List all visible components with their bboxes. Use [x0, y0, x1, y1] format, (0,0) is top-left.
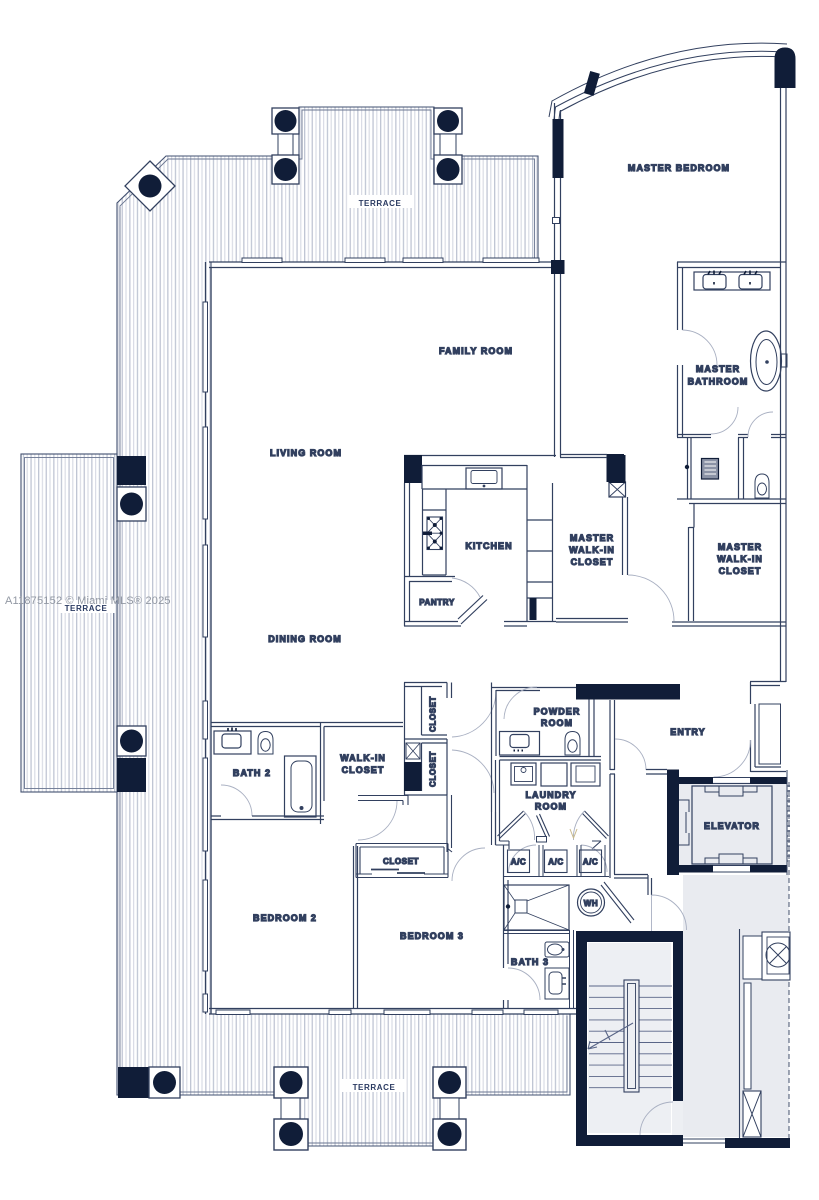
svg-text:A11875152 © Miami MLS® 2025: A11875152 © Miami MLS® 2025 [5, 595, 171, 607]
svg-text:A/C: A/C [548, 858, 564, 867]
svg-text:WALK-IN: WALK-IN [340, 753, 386, 763]
svg-text:BATH 2: BATH 2 [233, 768, 271, 778]
svg-text:MASTER BEDROOM: MASTER BEDROOM [628, 163, 730, 173]
svg-text:WH: WH [584, 899, 599, 908]
svg-text:A/C: A/C [583, 858, 599, 867]
svg-text:CLOSET: CLOSET [429, 751, 438, 787]
svg-text:ROOM: ROOM [535, 802, 567, 812]
svg-text:KITCHEN: KITCHEN [465, 541, 512, 551]
svg-text:TERRACE: TERRACE [359, 199, 402, 208]
svg-text:MASTER: MASTER [718, 542, 762, 552]
svg-text:CLOSET: CLOSET [571, 557, 614, 567]
svg-text:ELEVATOR: ELEVATOR [704, 821, 760, 831]
svg-text:TERRACE: TERRACE [353, 1083, 396, 1092]
svg-text:FAMILY ROOM: FAMILY ROOM [439, 346, 513, 356]
svg-text:WALK-IN: WALK-IN [717, 554, 763, 564]
svg-text:CLOSET: CLOSET [383, 857, 419, 866]
svg-text:BATHROOM: BATHROOM [688, 377, 749, 387]
svg-text:BEDROOM 3: BEDROOM 3 [400, 931, 464, 941]
svg-text:A/C: A/C [511, 858, 527, 867]
svg-text:ROOM: ROOM [541, 718, 573, 728]
svg-text:CLOSET: CLOSET [342, 765, 385, 775]
svg-text:POWDER: POWDER [534, 707, 581, 717]
svg-text:LIVING ROOM: LIVING ROOM [270, 448, 342, 458]
svg-text:DINING ROOM: DINING ROOM [268, 634, 342, 644]
svg-text:MASTER: MASTER [570, 533, 614, 543]
svg-text:BEDROOM 2: BEDROOM 2 [253, 913, 317, 923]
svg-text:PANTRY: PANTRY [419, 598, 455, 607]
svg-text:MASTER: MASTER [696, 364, 740, 374]
svg-text:LAUNDRY: LAUNDRY [525, 790, 576, 800]
svg-text:CLOSET: CLOSET [719, 566, 762, 576]
svg-text:BATH 3: BATH 3 [511, 957, 549, 967]
svg-text:ENTRY: ENTRY [670, 727, 705, 737]
svg-text:CLOSET: CLOSET [429, 696, 438, 732]
svg-text:WALK-IN: WALK-IN [569, 545, 615, 555]
